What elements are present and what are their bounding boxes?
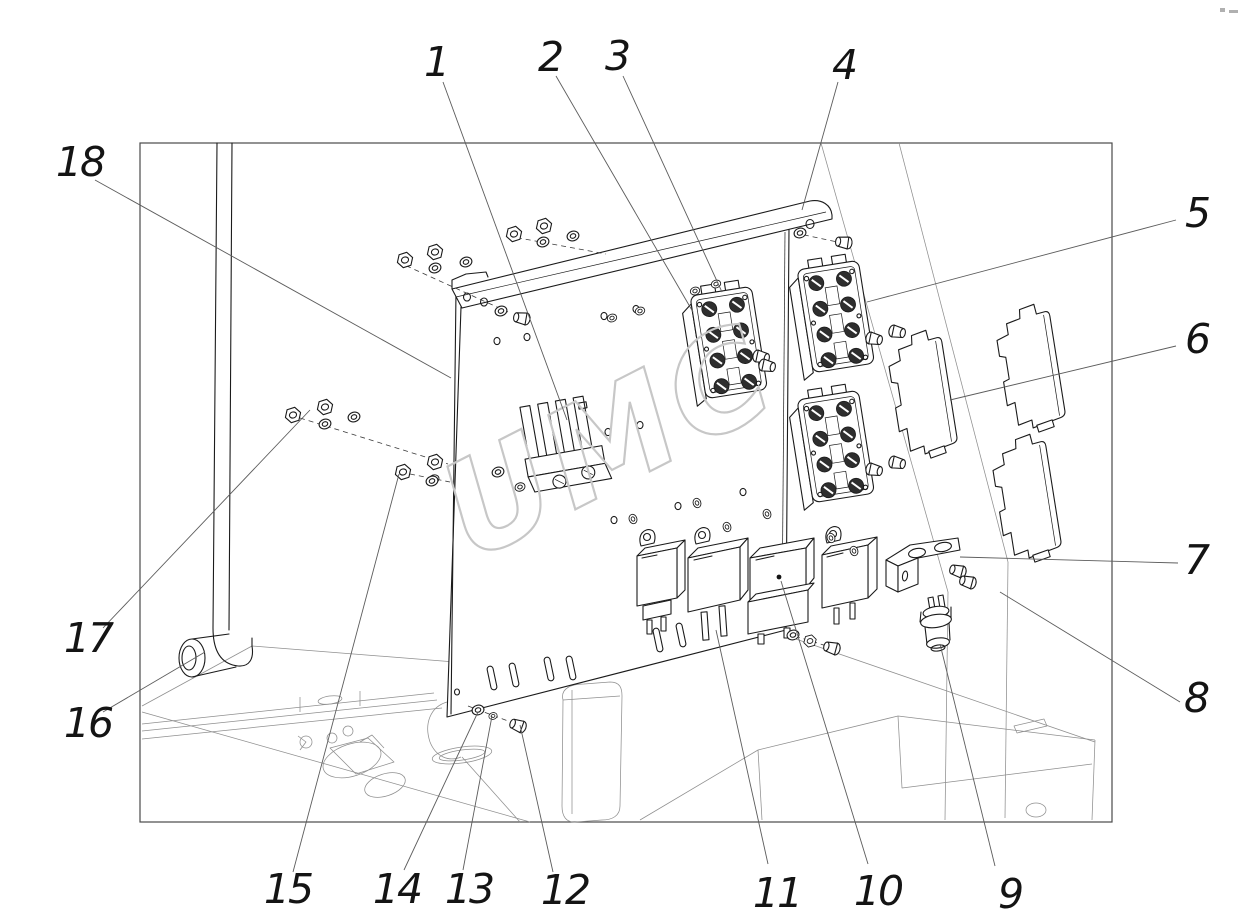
callout-10: 10 (854, 867, 903, 915)
diagram-canvas: UMC 1 2 3 4 5 6 7 8 9 10 11 12 13 14 (0, 0, 1242, 916)
callout-4: 4 (832, 41, 856, 89)
angle-bracket (886, 538, 960, 592)
callout-14: 14 (373, 865, 421, 913)
callout-13: 13 (445, 865, 493, 913)
callout-15: 15 (264, 865, 312, 913)
cover-middle (884, 328, 959, 462)
callout-18: 18 (56, 138, 105, 186)
fuse-block-lower-right (786, 382, 876, 510)
callout-17: 17 (64, 614, 114, 662)
callout-3: 3 (605, 32, 629, 80)
fuse-block-upper-right (786, 252, 876, 380)
callout-5: 5 (1185, 189, 1209, 237)
air-tube-elbow (179, 143, 252, 677)
cover-upper-right (992, 302, 1067, 436)
callout-6: 6 (1185, 315, 1210, 363)
pressure-sensor (920, 595, 953, 652)
callout-1: 1 (424, 38, 448, 86)
callout-16: 16 (64, 699, 113, 747)
callout-11: 11 (753, 869, 801, 916)
exploded-view-diagram: UMC 1 2 3 4 5 6 7 8 9 10 11 12 13 14 (0, 0, 1242, 916)
corner-print-artifact (1220, 8, 1238, 13)
callout-7: 7 (1184, 536, 1210, 584)
callout-2: 2 (538, 33, 562, 81)
cover-lower-right (988, 432, 1063, 566)
callout-9: 9 (998, 870, 1022, 916)
callout-8: 8 (1184, 674, 1209, 722)
callout-12: 12 (541, 866, 589, 914)
